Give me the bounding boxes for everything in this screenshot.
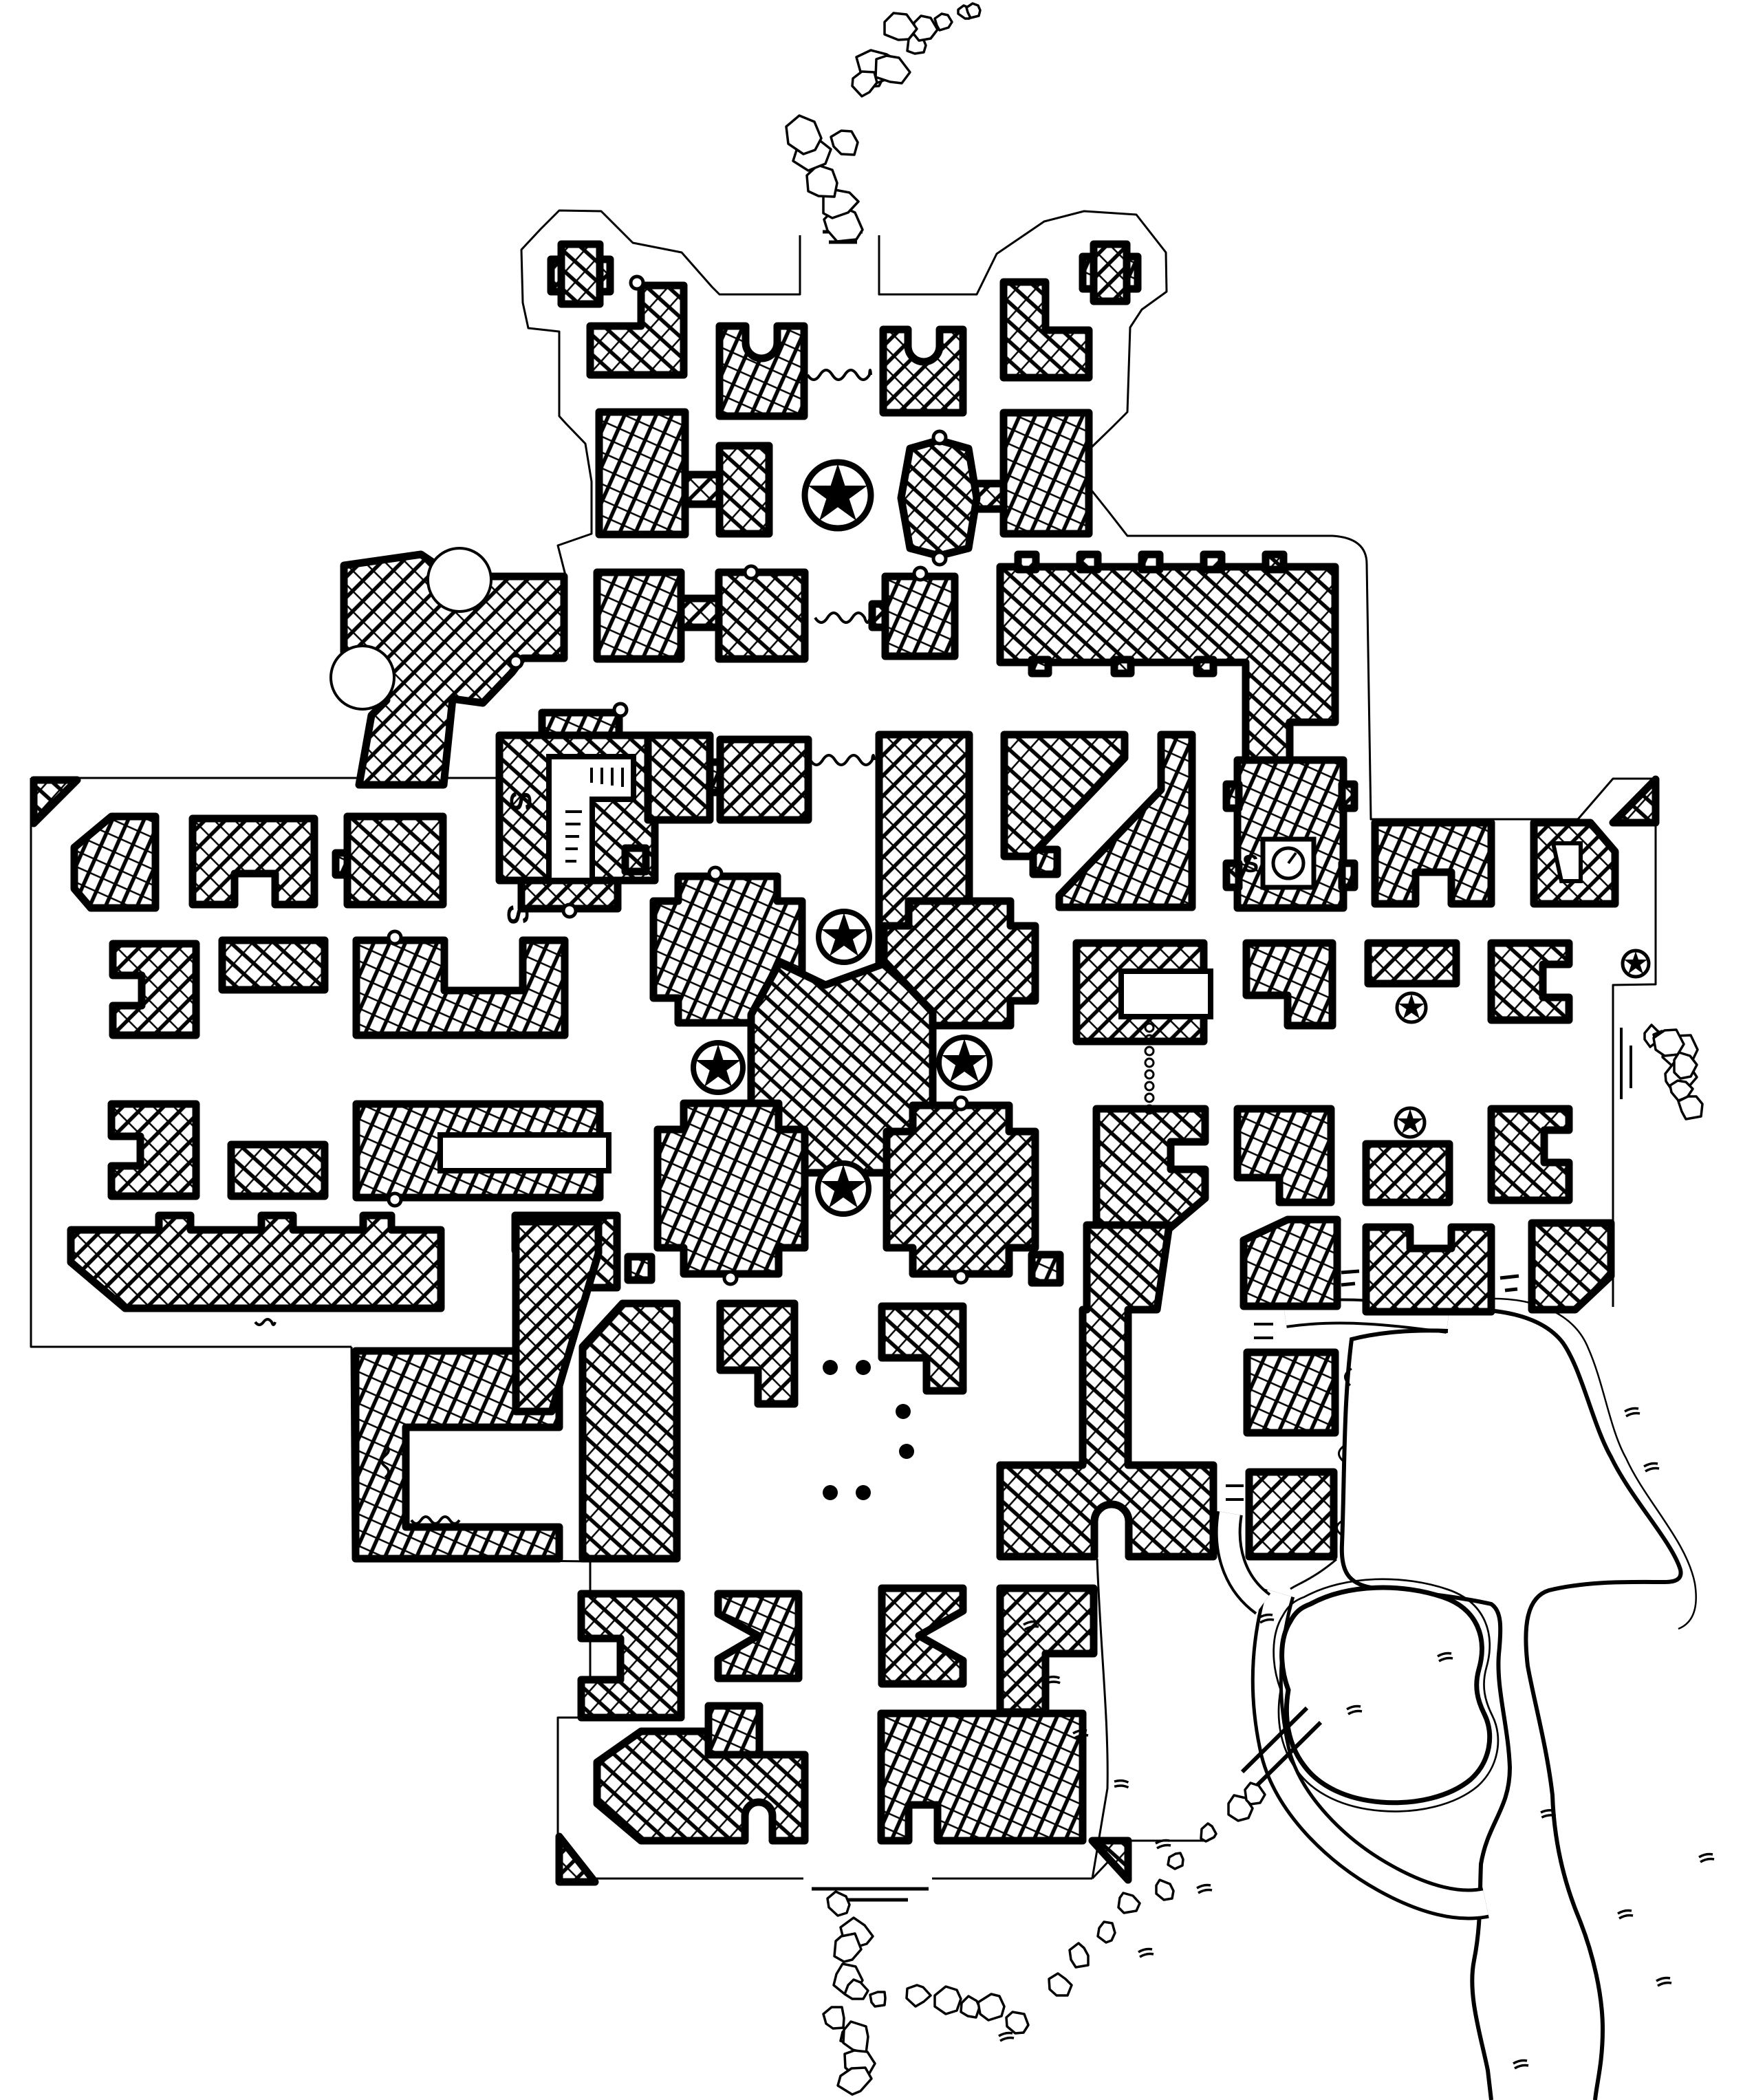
svg-text:S: S — [501, 905, 534, 924]
svg-text:S: S — [1242, 849, 1259, 878]
svg-text:S: S — [504, 791, 537, 811]
